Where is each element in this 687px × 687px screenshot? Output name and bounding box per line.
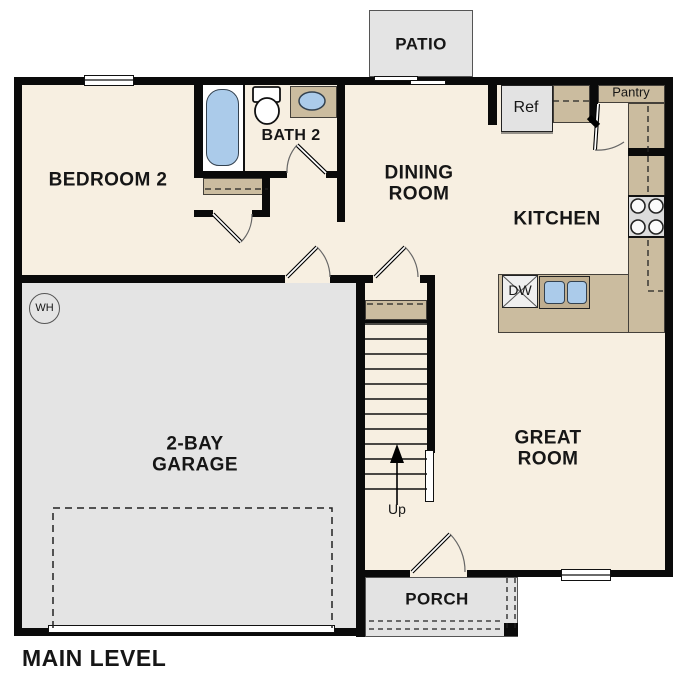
- bedroom-window: [84, 75, 134, 86]
- kitchen-sink-basin-left: [544, 281, 565, 304]
- garage-label: 2-BAY GARAGE: [152, 434, 238, 477]
- wall-ref-pantry: [590, 85, 598, 123]
- dining-room-label: DINING ROOM: [385, 163, 454, 206]
- up-label: Up: [388, 502, 406, 518]
- floor-plan: PATIO BEDROOM 2 BATH 2 DINING ROOM KITCH…: [0, 0, 687, 687]
- front-door-opening: [410, 570, 467, 577]
- great-room-label: GREAT ROOM: [514, 428, 581, 471]
- wall-ref-alcove-stub: [488, 85, 497, 125]
- bedroom2-label: BEDROOM 2: [49, 169, 168, 190]
- wall-stairhead-segment: [420, 275, 435, 283]
- bedroom-closet-shelf: [203, 178, 270, 195]
- kitchen-sink-basin-right: [567, 281, 587, 304]
- wall-closet-right: [262, 178, 270, 211]
- wall-left: [14, 77, 22, 636]
- wall-right: [665, 77, 673, 577]
- stair-railing: [425, 450, 434, 502]
- patio-label: PATIO: [395, 34, 446, 53]
- greatroom-window: [561, 569, 611, 581]
- ref-side-cabinet: [553, 85, 590, 123]
- stove: [628, 195, 665, 238]
- stair-closet-shelf: [365, 300, 427, 320]
- bath-sink-counter: [290, 86, 337, 118]
- dw-label: DW: [508, 283, 531, 299]
- wall-pantry-bottom: [628, 148, 665, 156]
- porch-label: PORCH: [405, 589, 468, 608]
- wall-bath-dining: [337, 77, 345, 222]
- wall-bedroom-bath: [194, 85, 203, 171]
- wall-garage-right: [356, 275, 365, 637]
- pantry-label: Pantry: [612, 86, 650, 101]
- wall-stairs-right: [427, 283, 435, 453]
- bathtub: [206, 89, 239, 166]
- patio-slider-panel-right: [410, 80, 446, 85]
- ref-label: Ref: [514, 99, 539, 117]
- wall-hall-segment: [330, 275, 373, 283]
- wall-bedroom-bottom: [14, 275, 285, 283]
- wh-label: WH: [35, 302, 53, 314]
- plan-title: MAIN LEVEL: [22, 646, 166, 672]
- stair-closet-edge: [365, 320, 427, 323]
- kitchen-label: KITCHEN: [513, 208, 600, 229]
- wall-bath-bottom: [194, 171, 287, 178]
- porch-post: [504, 623, 518, 636]
- wall-closet-bottom-left: [194, 210, 213, 217]
- wall-closet-bottom-right: [252, 210, 270, 217]
- bath2-label: BATH 2: [262, 127, 321, 145]
- garage-door: [48, 625, 335, 633]
